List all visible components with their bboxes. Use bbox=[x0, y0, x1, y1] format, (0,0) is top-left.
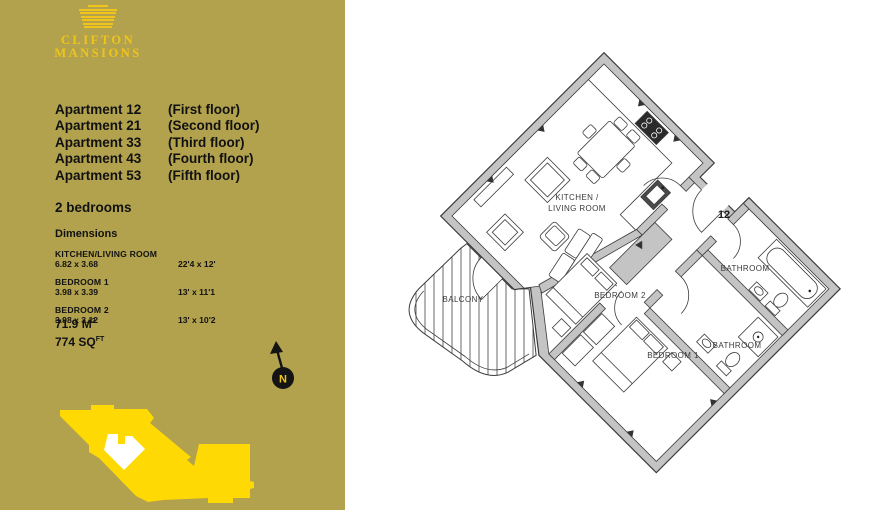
building-footprint-keyplan bbox=[0, 0, 345, 510]
building-footprint bbox=[60, 405, 254, 503]
floorplan: KITCHEN / LIVING ROOM BEDROOM 2 BEDROOM … bbox=[345, 0, 880, 510]
brochure-page: CLIFTON MANSIONS Apartment 12 (First flo… bbox=[0, 0, 880, 510]
left-panel: CLIFTON MANSIONS Apartment 12 (First flo… bbox=[0, 0, 345, 510]
label-balcony: BALCONY bbox=[442, 295, 483, 304]
label-bathroom-2: BATHROOM bbox=[713, 341, 762, 350]
label-unit-number: 12 bbox=[718, 209, 730, 221]
label-kitchen-living-1: KITCHEN / bbox=[555, 193, 599, 202]
label-bedroom-1: BEDROOM 1 bbox=[647, 351, 699, 360]
label-kitchen-living-2: LIVING ROOM bbox=[548, 204, 606, 213]
label-bedroom-2: BEDROOM 2 bbox=[594, 291, 646, 300]
label-bathroom-1: BATHROOM bbox=[721, 264, 770, 273]
